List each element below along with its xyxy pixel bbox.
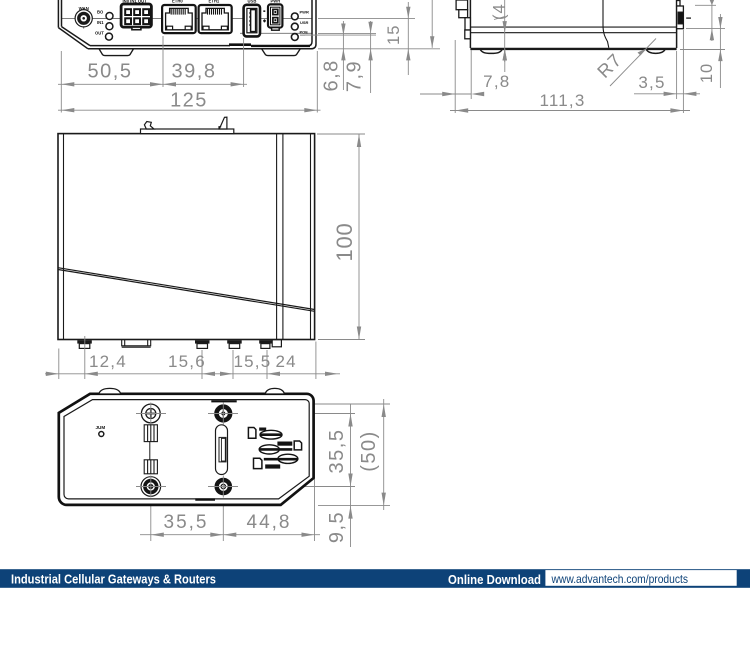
svg-text:9,5: 9,5 [326, 511, 348, 543]
svg-text:IN1: IN1 [97, 20, 104, 25]
svg-text:BO: BO [97, 9, 104, 14]
svg-text:100: 100 [332, 222, 357, 261]
svg-text:IN0 IN1 OUT: IN0 IN1 OUT [123, 0, 148, 4]
svg-text:POE: POE [300, 30, 309, 35]
svg-text:12,4: 12,4 [89, 352, 127, 371]
svg-text:7,8: 7,8 [483, 72, 510, 91]
svg-text:7,9: 7,9 [344, 60, 366, 92]
svg-text:3,5: 3,5 [638, 73, 665, 92]
svg-text:OUT: OUT [95, 30, 104, 35]
svg-text:(4: (4 [491, 3, 509, 20]
svg-text:WAN: WAN [79, 6, 89, 11]
svg-text:10: 10 [698, 63, 716, 83]
svg-text:ETH0: ETH0 [172, 0, 183, 4]
svg-text:35,5: 35,5 [326, 429, 348, 474]
svg-text:15,6: 15,6 [168, 352, 206, 371]
svg-text:ETH1: ETH1 [209, 0, 220, 4]
svg-text:50,5: 50,5 [88, 61, 133, 83]
svg-text:44,8: 44,8 [247, 512, 292, 533]
svg-text:15,5: 15,5 [234, 352, 272, 371]
svg-text:JUM: JUM [96, 425, 106, 430]
svg-text:35,5: 35,5 [164, 512, 209, 533]
svg-text:24: 24 [276, 352, 297, 371]
svg-text:PWR: PWR [300, 9, 309, 14]
svg-text:PWR: PWR [271, 0, 281, 4]
svg-text:USB: USB [248, 0, 257, 4]
svg-text:(50): (50) [358, 430, 380, 472]
svg-text:www.advantech.com/products: www.advantech.com/products [551, 572, 688, 586]
svg-text:15: 15 [385, 25, 403, 45]
svg-text:125: 125 [170, 90, 208, 112]
svg-text:Online Download: Online Download [448, 572, 541, 587]
svg-text:Industrial Cellular Gateways &: Industrial Cellular Gateways & Routers [11, 572, 216, 587]
svg-text:6,8: 6,8 [321, 59, 343, 91]
svg-text:111,3: 111,3 [539, 91, 585, 110]
svg-text:USR: USR [300, 20, 309, 25]
svg-text:39,8: 39,8 [172, 61, 217, 83]
